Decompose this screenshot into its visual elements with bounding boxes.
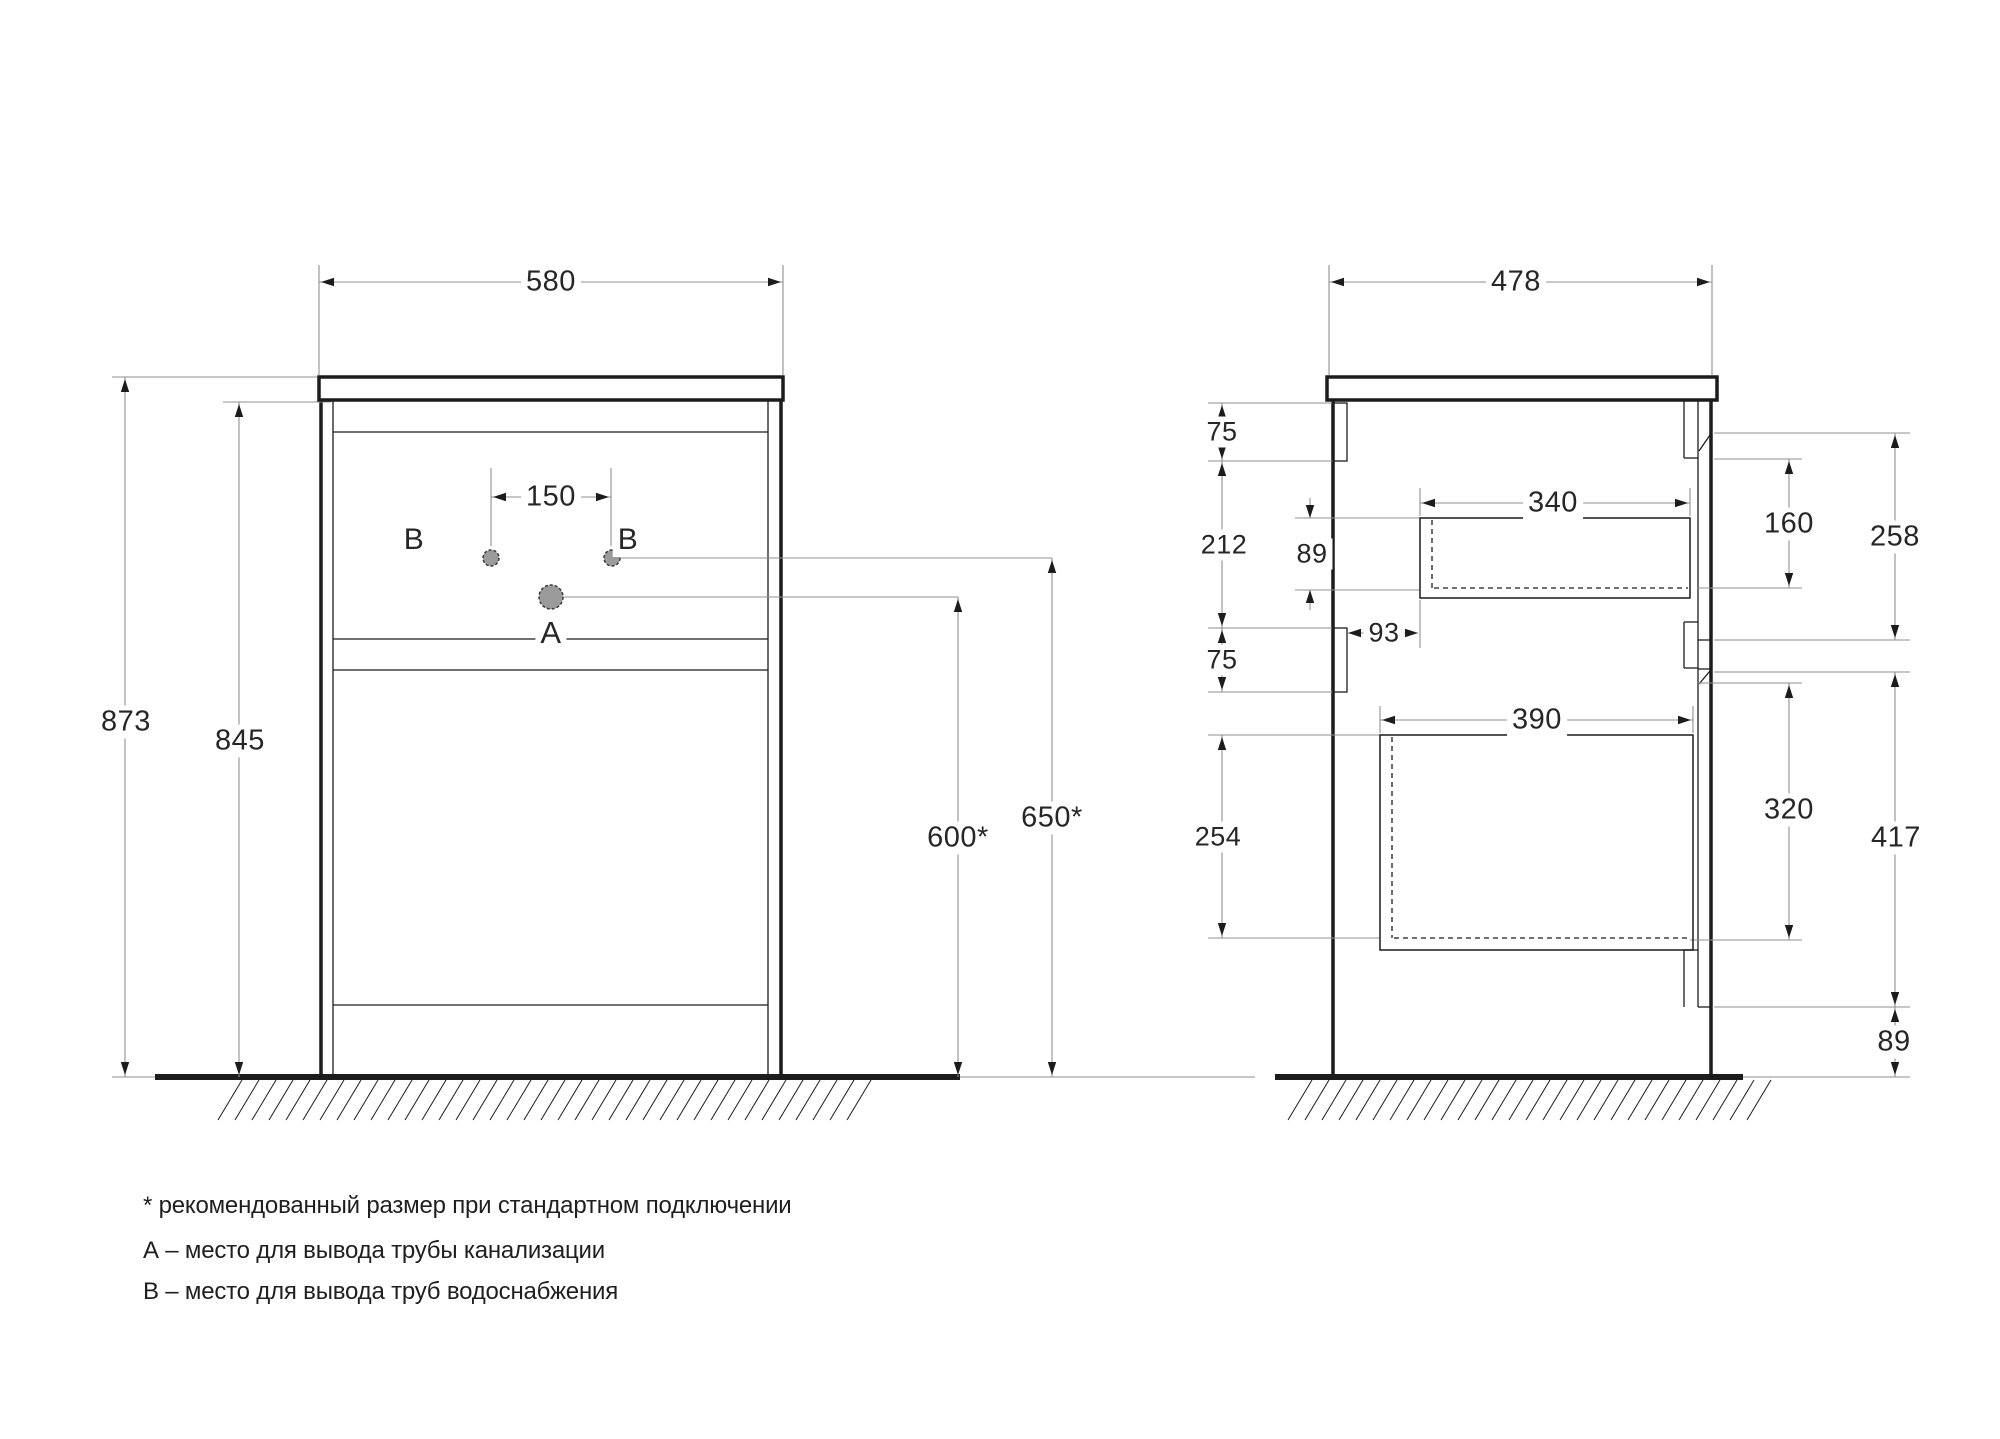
- dim-label-75-middle: 75: [1201, 645, 1242, 676]
- dim-label-89-drawer: 89: [1291, 539, 1332, 570]
- dim-label-258: 258: [1865, 521, 1925, 554]
- pipe-label-b-left: B: [399, 523, 430, 557]
- dim-label-320: 320: [1759, 794, 1819, 827]
- dim-label-340: 340: [1523, 487, 1583, 520]
- pipe-label-b-right: B: [613, 523, 644, 557]
- dim-label-212: 212: [1196, 530, 1253, 561]
- dim-label-160: 160: [1759, 508, 1819, 541]
- dim-label-873: 873: [96, 706, 156, 739]
- dim-label-390: 390: [1507, 704, 1567, 737]
- note-recommended-size: * рекомендованный размер при стандартном…: [143, 1192, 792, 1220]
- dim-label-478: 478: [1486, 266, 1546, 299]
- dim-label-150: 150: [521, 481, 581, 514]
- technical-drawing-page: 580478873845150BBA600*650*75212897593254…: [0, 0, 2000, 1439]
- dim-label-600: 600*: [922, 822, 994, 855]
- note-drain-a: А – место для вывода трубы канализации: [143, 1237, 792, 1265]
- dim-label-580: 580: [521, 266, 581, 299]
- dim-label-89-bottom: 89: [1872, 1026, 1915, 1059]
- dim-label-75-top: 75: [1201, 417, 1242, 448]
- dim-label-417: 417: [1866, 822, 1926, 855]
- dim-label-93: 93: [1363, 618, 1404, 649]
- dim-label-254: 254: [1190, 822, 1247, 853]
- note-supply-b: В – место для вывода труб водоснабжения: [143, 1278, 792, 1306]
- legend-notes: * рекомендованный размер при стандартном…: [143, 1192, 792, 1306]
- pipe-label-a: A: [535, 615, 566, 651]
- dim-label-650: 650*: [1016, 802, 1088, 835]
- dim-label-845: 845: [210, 725, 270, 758]
